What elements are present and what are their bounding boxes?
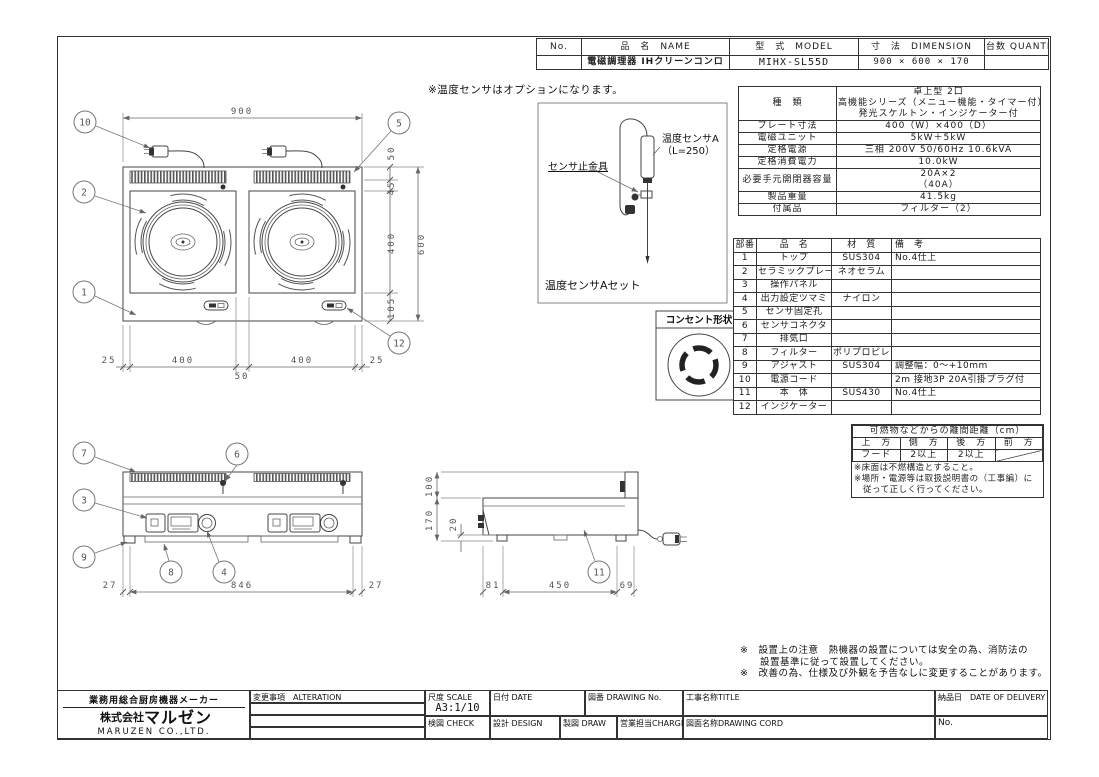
table-cell xyxy=(892,266,1041,280)
table-row: 8フィルターポリプロピレン xyxy=(734,347,1041,361)
table-cell: センサ固定孔 xyxy=(757,306,832,320)
table-cell: フィルター（2） xyxy=(837,204,1041,216)
table-cell xyxy=(832,401,892,415)
draw-cell: 製図 DRAW xyxy=(560,716,617,739)
table-cell: 9 xyxy=(734,360,757,374)
alteration-row-1 xyxy=(250,703,425,715)
table-row: 7排気口 xyxy=(734,333,1041,347)
drawing-no-cell: 図番 DRAWING No. xyxy=(585,690,683,716)
table-cell: 卓上型 2口高機能シリーズ（メニュー機能・タイマー付）発光スケルトン・インジケー… xyxy=(837,87,1041,121)
clearance-title: 可燃物などからの離間距離（cm） xyxy=(853,426,1043,438)
table-cell: ナイロン xyxy=(832,293,892,307)
parts-col-remarks: 備 考 xyxy=(892,239,1041,253)
clearance-rear-val: 2以上 xyxy=(948,450,996,462)
drawing-sheet: .ln{stroke:#444;fill:none;stroke-width:1… xyxy=(0,0,1099,777)
title-block: 業務用総合厨房機器メーカー 株式会社マルゼン MARUZEN CO.,LTD. … xyxy=(57,690,1049,739)
col-dimension: 寸 法 DIMENSION xyxy=(859,39,985,56)
table-cell: 5kW＋5kW xyxy=(837,133,1041,145)
table-cell: 41.5kg xyxy=(837,192,1041,204)
clearance-col-top: 上 方 xyxy=(853,438,901,450)
table-cell: 三相 200V 50/60Hz 10.6kVA xyxy=(837,145,1041,157)
col-no: No. xyxy=(537,39,582,56)
design-cell: 設計 DESIGN xyxy=(490,716,560,739)
cell-name: 電磁調理器 IHクリーンコンロ xyxy=(582,56,730,70)
table-cell xyxy=(892,279,1041,293)
company-name: 株式会社マルゼン xyxy=(100,704,212,728)
clearance-side-val: 2以上 xyxy=(900,450,948,462)
scale-cell: 尺度 SCALE A3:1/10 xyxy=(425,690,490,716)
table-row: 12インジケーター xyxy=(734,401,1041,415)
clearance-col-front: 前 方 xyxy=(995,438,1043,450)
table-row: 1トップSUS304No.4仕上 xyxy=(734,252,1041,266)
table-cell: 10 xyxy=(734,374,757,388)
cell-quantity xyxy=(985,56,1049,70)
drawing-cord-cell: 図面名称DRAWING CORD xyxy=(683,716,935,739)
table-cell: 定格消費電力 xyxy=(739,157,837,169)
alteration-cell: 変更事項 ALTERATION xyxy=(250,690,425,703)
table-cell: 電磁ユニット xyxy=(739,133,837,145)
cell-model: MIHX-SL55D xyxy=(730,56,859,70)
table-cell: トップ xyxy=(757,252,832,266)
table-row: 製品重量41.5kg xyxy=(739,192,1041,204)
table-cell: センサコネクタ xyxy=(757,320,832,334)
table-row: 4出力設定ツマミナイロン xyxy=(734,293,1041,307)
table-cell: 本 体 xyxy=(757,387,832,401)
table-cell: 出力設定ツマミ xyxy=(757,293,832,307)
table-row: 付属品フィルター（2） xyxy=(739,204,1041,216)
company-name-en: MARUZEN CO.,LTD. xyxy=(63,727,245,737)
table-cell: 3 xyxy=(734,279,757,293)
table-cell: 排気口 xyxy=(757,333,832,347)
table-cell: アジャスト xyxy=(757,360,832,374)
table-cell: 8 xyxy=(734,347,757,361)
sensor-option-note: ※温度センサはオプションになります。 xyxy=(428,82,623,97)
table-row: 9アジャストSUS304調整幅：0〜+10mm xyxy=(734,360,1041,374)
clearance-notes: ※床面は不燃構造とすること。 ※場所・電源等は取扱説明書の（工事編）に 従って正… xyxy=(852,462,1043,497)
table-row: 10電源コード2m 接地3P 20A引掛プラグ付 xyxy=(734,374,1041,388)
clearance-box: 可燃物などからの離間距離（cm） 上 方 側 方 後 方 前 方 フード 2以上… xyxy=(851,424,1044,498)
table-cell: ポリプロピレン xyxy=(832,347,892,361)
table-cell: 12 xyxy=(734,401,757,415)
table-cell xyxy=(892,401,1041,415)
table-cell: 20A×2（40A） xyxy=(837,169,1041,192)
alteration-row-3 xyxy=(250,727,425,739)
table-cell xyxy=(892,347,1041,361)
installation-notes: ※ 設置上の注意 熱機器の設置については安全の為、消防法の 設置基準に従って設置… xyxy=(740,645,1045,680)
table-row: 11本 体SUS430No.4仕上 xyxy=(734,387,1041,401)
table-cell: SUS304 xyxy=(832,360,892,374)
table-cell xyxy=(832,374,892,388)
table-cell xyxy=(892,333,1041,347)
no-cell: No. xyxy=(935,716,1048,739)
maker-cell: 業務用総合厨房機器メーカー 株式会社マルゼン MARUZEN CO.,LTD. xyxy=(57,690,250,739)
table-cell: SUS304 xyxy=(832,252,892,266)
title-cell: 工事名称TITLE xyxy=(683,690,935,716)
table-row: 2セラミックプレートネオセラム xyxy=(734,266,1041,280)
check-cell: 検図 CHECK xyxy=(425,716,490,739)
parts-col-no: 部番 xyxy=(734,239,757,253)
table-row: プレート寸法400（W）×400（D） xyxy=(739,121,1041,133)
table-cell: 定格電源 xyxy=(739,145,837,157)
clearance-front-val xyxy=(995,450,1043,462)
scale-value: A3:1/10 xyxy=(426,702,489,714)
table-cell: No.4仕上 xyxy=(892,252,1041,266)
table-cell xyxy=(832,320,892,334)
table-cell: 必要手元開閉器容量 xyxy=(739,169,837,192)
table-cell: ネオセラム xyxy=(832,266,892,280)
table-cell: 2m 接地3P 20A引掛プラグ付 xyxy=(892,374,1041,388)
table-row: 電磁ユニット5kW＋5kW xyxy=(739,133,1041,145)
table-cell: 操作パネル xyxy=(757,279,832,293)
table-cell: インジケーター xyxy=(757,401,832,415)
table-row: 6センサコネクタ xyxy=(734,320,1041,334)
table-cell: 種 類 xyxy=(739,87,837,121)
spec-table: 種 類卓上型 2口高機能シリーズ（メニュー機能・タイマー付）発光スケルトン・イン… xyxy=(738,86,1041,216)
col-model: 型 式 MODEL xyxy=(730,39,859,56)
table-cell: 付属品 xyxy=(739,204,837,216)
table-cell: 6 xyxy=(734,320,757,334)
table-cell: セラミックプレート xyxy=(757,266,832,280)
clearance-hood: フード xyxy=(853,450,901,462)
table-cell xyxy=(832,333,892,347)
table-row: 3操作パネル xyxy=(734,279,1041,293)
charge-cell: 営業担当CHARGE xyxy=(617,716,683,739)
col-name: 品 名 NAME xyxy=(582,39,730,56)
table-row: 5センサ固定孔 xyxy=(734,306,1041,320)
parts-col-name: 品 名 xyxy=(757,239,832,253)
table-cell xyxy=(832,306,892,320)
parts-col-material: 材 質 xyxy=(832,239,892,253)
table-cell xyxy=(832,279,892,293)
table-cell: 4 xyxy=(734,293,757,307)
table-cell: 1 xyxy=(734,252,757,266)
table-cell: 11 xyxy=(734,387,757,401)
table-row: 必要手元開閉器容量20A×2（40A） xyxy=(739,169,1041,192)
header-table: No. 品 名 NAME 型 式 MODEL 寸 法 DIMENSION 台数 … xyxy=(536,38,1049,70)
table-cell: 2 xyxy=(734,266,757,280)
delivery-cell: 納品日 DATE OF DELIVERY xyxy=(935,690,1048,716)
parts-table: 部番 品 名 材 質 備 考 1トップSUS304No.4仕上2セラミックプレー… xyxy=(733,238,1041,415)
table-row: 種 類卓上型 2口高機能シリーズ（メニュー機能・タイマー付）発光スケルトン・イン… xyxy=(739,87,1041,121)
table-cell: 7 xyxy=(734,333,757,347)
table-row: 定格消費電力10.0kW xyxy=(739,157,1041,169)
table-cell: 電源コード xyxy=(757,374,832,388)
table-cell: No.4仕上 xyxy=(892,387,1041,401)
table-cell xyxy=(892,320,1041,334)
date-cell: 日付 DATE xyxy=(490,690,585,716)
table-cell xyxy=(892,293,1041,307)
table-cell: SUS430 xyxy=(832,387,892,401)
cell-dimension: 900 × 600 × 170 xyxy=(859,56,985,70)
table-cell: 10.0kW xyxy=(837,157,1041,169)
table-cell: 調整幅：0〜+10mm xyxy=(892,360,1041,374)
col-quantity: 台数 QUANTITY xyxy=(985,39,1049,56)
clearance-col-rear: 後 方 xyxy=(948,438,996,450)
table-cell: 400（W）×400（D） xyxy=(837,121,1041,133)
alteration-row-2 xyxy=(250,715,425,727)
clearance-col-side: 側 方 xyxy=(900,438,948,450)
table-row: 定格電源三相 200V 50/60Hz 10.6kVA xyxy=(739,145,1041,157)
cell-no xyxy=(537,56,582,70)
table-cell: プレート寸法 xyxy=(739,121,837,133)
table-cell xyxy=(892,306,1041,320)
table-cell: 製品重量 xyxy=(739,192,837,204)
table-cell: フィルター xyxy=(757,347,832,361)
table-cell: 5 xyxy=(734,306,757,320)
